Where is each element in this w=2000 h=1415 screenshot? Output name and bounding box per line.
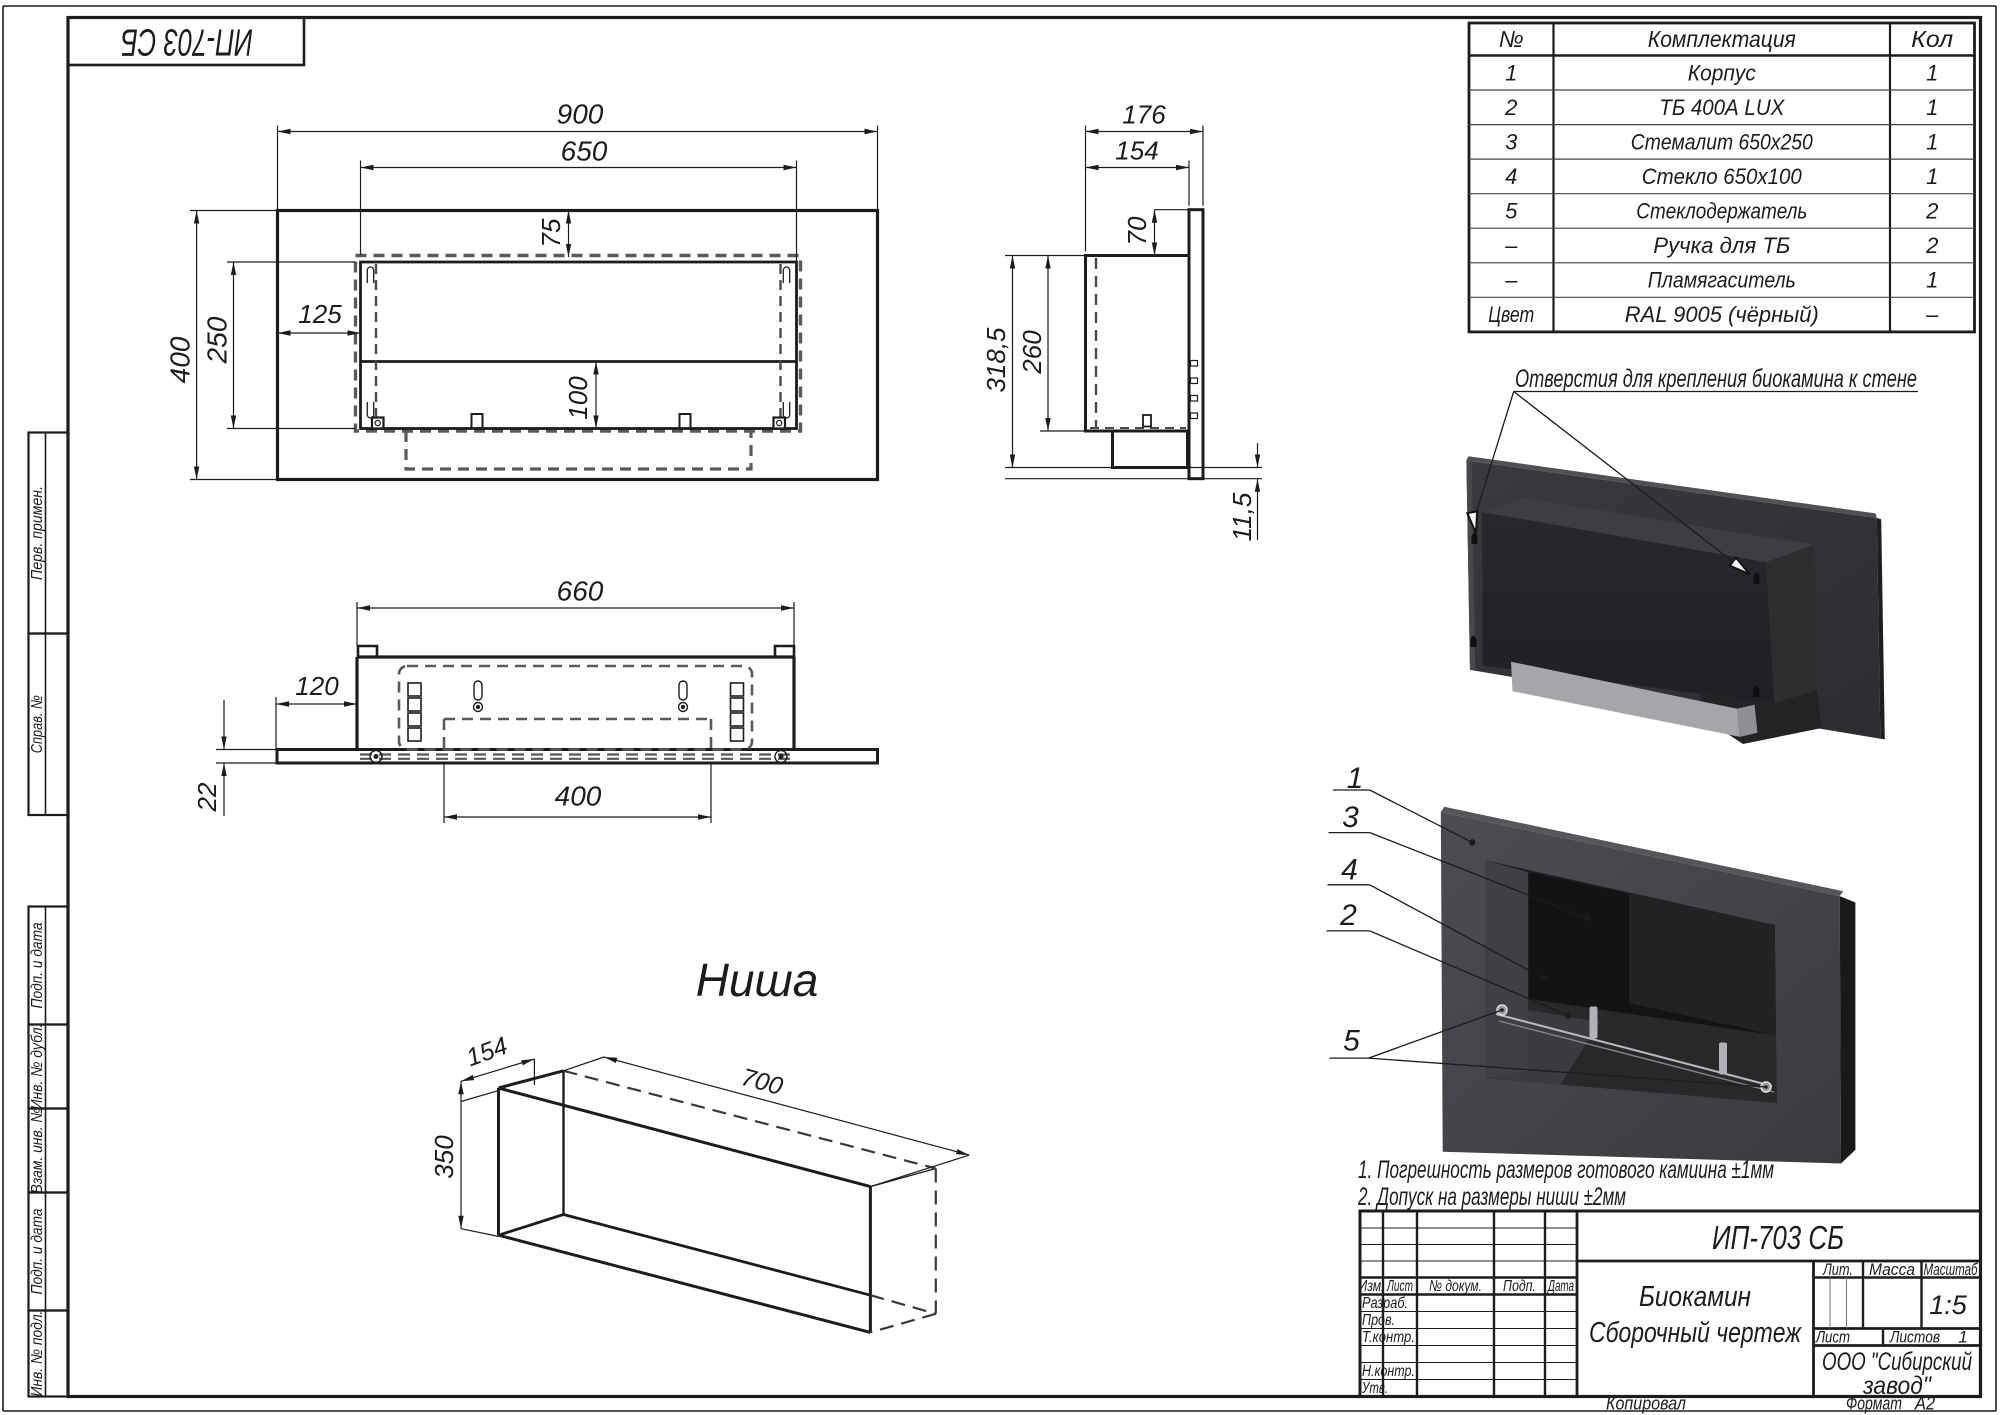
svg-text:3: 3	[1505, 129, 1518, 154]
svg-text:250: 250	[202, 316, 233, 364]
svg-text:№ докум.: № докум.	[1429, 1278, 1482, 1295]
svg-text:660: 660	[557, 576, 604, 607]
svg-text:Справ. №: Справ. №	[29, 695, 46, 753]
svg-text:2: 2	[1925, 233, 1938, 258]
svg-text:Дата: Дата	[1547, 1278, 1574, 1295]
svg-text:Н.контр.: Н.контр.	[1362, 1363, 1415, 1380]
svg-text:1: 1	[1926, 60, 1938, 85]
svg-text:Разраб.: Разраб.	[1362, 1295, 1408, 1312]
svg-text:Стеклодержатель: Стеклодержатель	[1636, 199, 1807, 224]
svg-text:5: 5	[1343, 1025, 1360, 1058]
svg-text:318,5: 318,5	[981, 327, 1011, 393]
svg-text:Стекло 650х100: Стекло 650х100	[1642, 164, 1803, 189]
svg-text:Лист: Лист	[1815, 1328, 1850, 1347]
svg-text:Стемалит 650х250: Стемалит 650х250	[1631, 129, 1814, 154]
svg-text:Кол: Кол	[1911, 26, 1953, 52]
svg-text:400: 400	[165, 336, 196, 383]
svg-text:Инв. № подл.: Инв. № подл.	[29, 1311, 46, 1397]
svg-text:176: 176	[1122, 100, 1166, 130]
svg-text:4: 4	[1341, 854, 1358, 887]
svg-text:350: 350	[429, 1135, 459, 1179]
svg-text:2. Допуск на размеры ниши ±2мм: 2. Допуск на размеры ниши ±2мм	[1357, 1183, 1626, 1211]
svg-text:–: –	[1504, 268, 1518, 293]
svg-text:11,5: 11,5	[1227, 492, 1257, 541]
svg-text:1:5: 1:5	[1929, 1290, 1968, 1320]
svg-text:4: 4	[1505, 164, 1517, 189]
svg-text:1: 1	[1926, 268, 1938, 293]
svg-text:RAL 9005 (чёрный): RAL 9005 (чёрный)	[1625, 302, 1819, 327]
svg-text:2: 2	[1925, 199, 1938, 224]
svg-text:Инв. № дубл.: Инв. № дубл.	[29, 1024, 46, 1110]
svg-text:Листов: Листов	[1889, 1328, 1940, 1347]
svg-text:Комплектация: Комплектация	[1648, 26, 1796, 52]
svg-text:Пров.: Пров.	[1362, 1312, 1395, 1329]
svg-text:Пламягаситель: Пламягаситель	[1648, 268, 1796, 293]
svg-text:Подп. и дата: Подп. и дата	[29, 922, 46, 1008]
svg-text:ИП-703 СБ: ИП-703 СБ	[1712, 1219, 1844, 1256]
svg-text:Масса: Масса	[1869, 1260, 1915, 1279]
svg-text:1: 1	[1926, 164, 1938, 189]
svg-text:Цвет: Цвет	[1488, 302, 1534, 327]
svg-text:1: 1	[1926, 129, 1938, 154]
svg-text:22: 22	[192, 782, 222, 812]
svg-text:№: №	[1499, 26, 1524, 52]
svg-text:3: 3	[1342, 801, 1359, 834]
svg-text:1: 1	[1958, 1328, 1967, 1347]
svg-text:Отверстия для крепления биокам: Отверстия для крепления биокамина к стен…	[1515, 365, 1917, 393]
svg-text:154: 154	[1115, 136, 1158, 166]
svg-text:Изм.: Изм.	[1359, 1278, 1385, 1295]
svg-text:Т.контр.: Т.контр.	[1362, 1329, 1415, 1346]
svg-text:70: 70	[1122, 216, 1152, 245]
svg-text:Ручка для ТБ: Ручка для ТБ	[1653, 233, 1790, 258]
svg-text:400: 400	[555, 781, 602, 812]
svg-text:ИП-703 СБ: ИП-703 СБ	[121, 21, 253, 63]
svg-text:Лит.: Лит.	[1822, 1260, 1853, 1279]
svg-text:120: 120	[295, 671, 339, 701]
svg-text:Утв.: Утв.	[1361, 1380, 1388, 1397]
svg-text:260: 260	[1017, 330, 1047, 375]
svg-text:–: –	[1504, 233, 1518, 258]
svg-text:2: 2	[1339, 899, 1357, 932]
svg-text:900: 900	[557, 99, 604, 130]
svg-text:Лист: Лист	[1386, 1278, 1413, 1295]
svg-text:5: 5	[1505, 199, 1518, 224]
svg-text:Сборочный чертеж: Сборочный чертеж	[1589, 1317, 1802, 1349]
svg-text:Подп. и дата: Подп. и дата	[29, 1208, 46, 1294]
svg-text:100: 100	[563, 376, 593, 420]
svg-text:1: 1	[1926, 95, 1938, 120]
svg-text:Взам. инв. №: Взам. инв. №	[29, 1108, 46, 1194]
svg-text:Корпус: Корпус	[1688, 60, 1756, 85]
svg-text:–: –	[1925, 302, 1939, 327]
svg-text:Биокамин: Биокамин	[1639, 1281, 1751, 1313]
svg-text:Подп.: Подп.	[1503, 1278, 1536, 1295]
svg-text:2: 2	[1504, 95, 1517, 120]
svg-text:Масштаб: Масштаб	[1924, 1260, 1979, 1279]
svg-text:1. Погрешность размеров готово: 1. Погрешность размеров готового камиина…	[1358, 1156, 1774, 1184]
svg-text:А2: А2	[1914, 1394, 1935, 1414]
svg-text:650: 650	[561, 136, 608, 167]
svg-text:1: 1	[1505, 60, 1517, 85]
svg-text:Перв. примен.: Перв. примен.	[29, 486, 46, 580]
svg-text:Ниша: Ниша	[696, 954, 819, 1006]
svg-text:75: 75	[536, 218, 566, 247]
svg-text:Формат: Формат	[1846, 1394, 1902, 1414]
svg-text:ТБ 400А LUX: ТБ 400А LUX	[1659, 95, 1785, 120]
svg-text:125: 125	[298, 299, 342, 329]
svg-text:Копировал: Копировал	[1606, 1394, 1686, 1414]
